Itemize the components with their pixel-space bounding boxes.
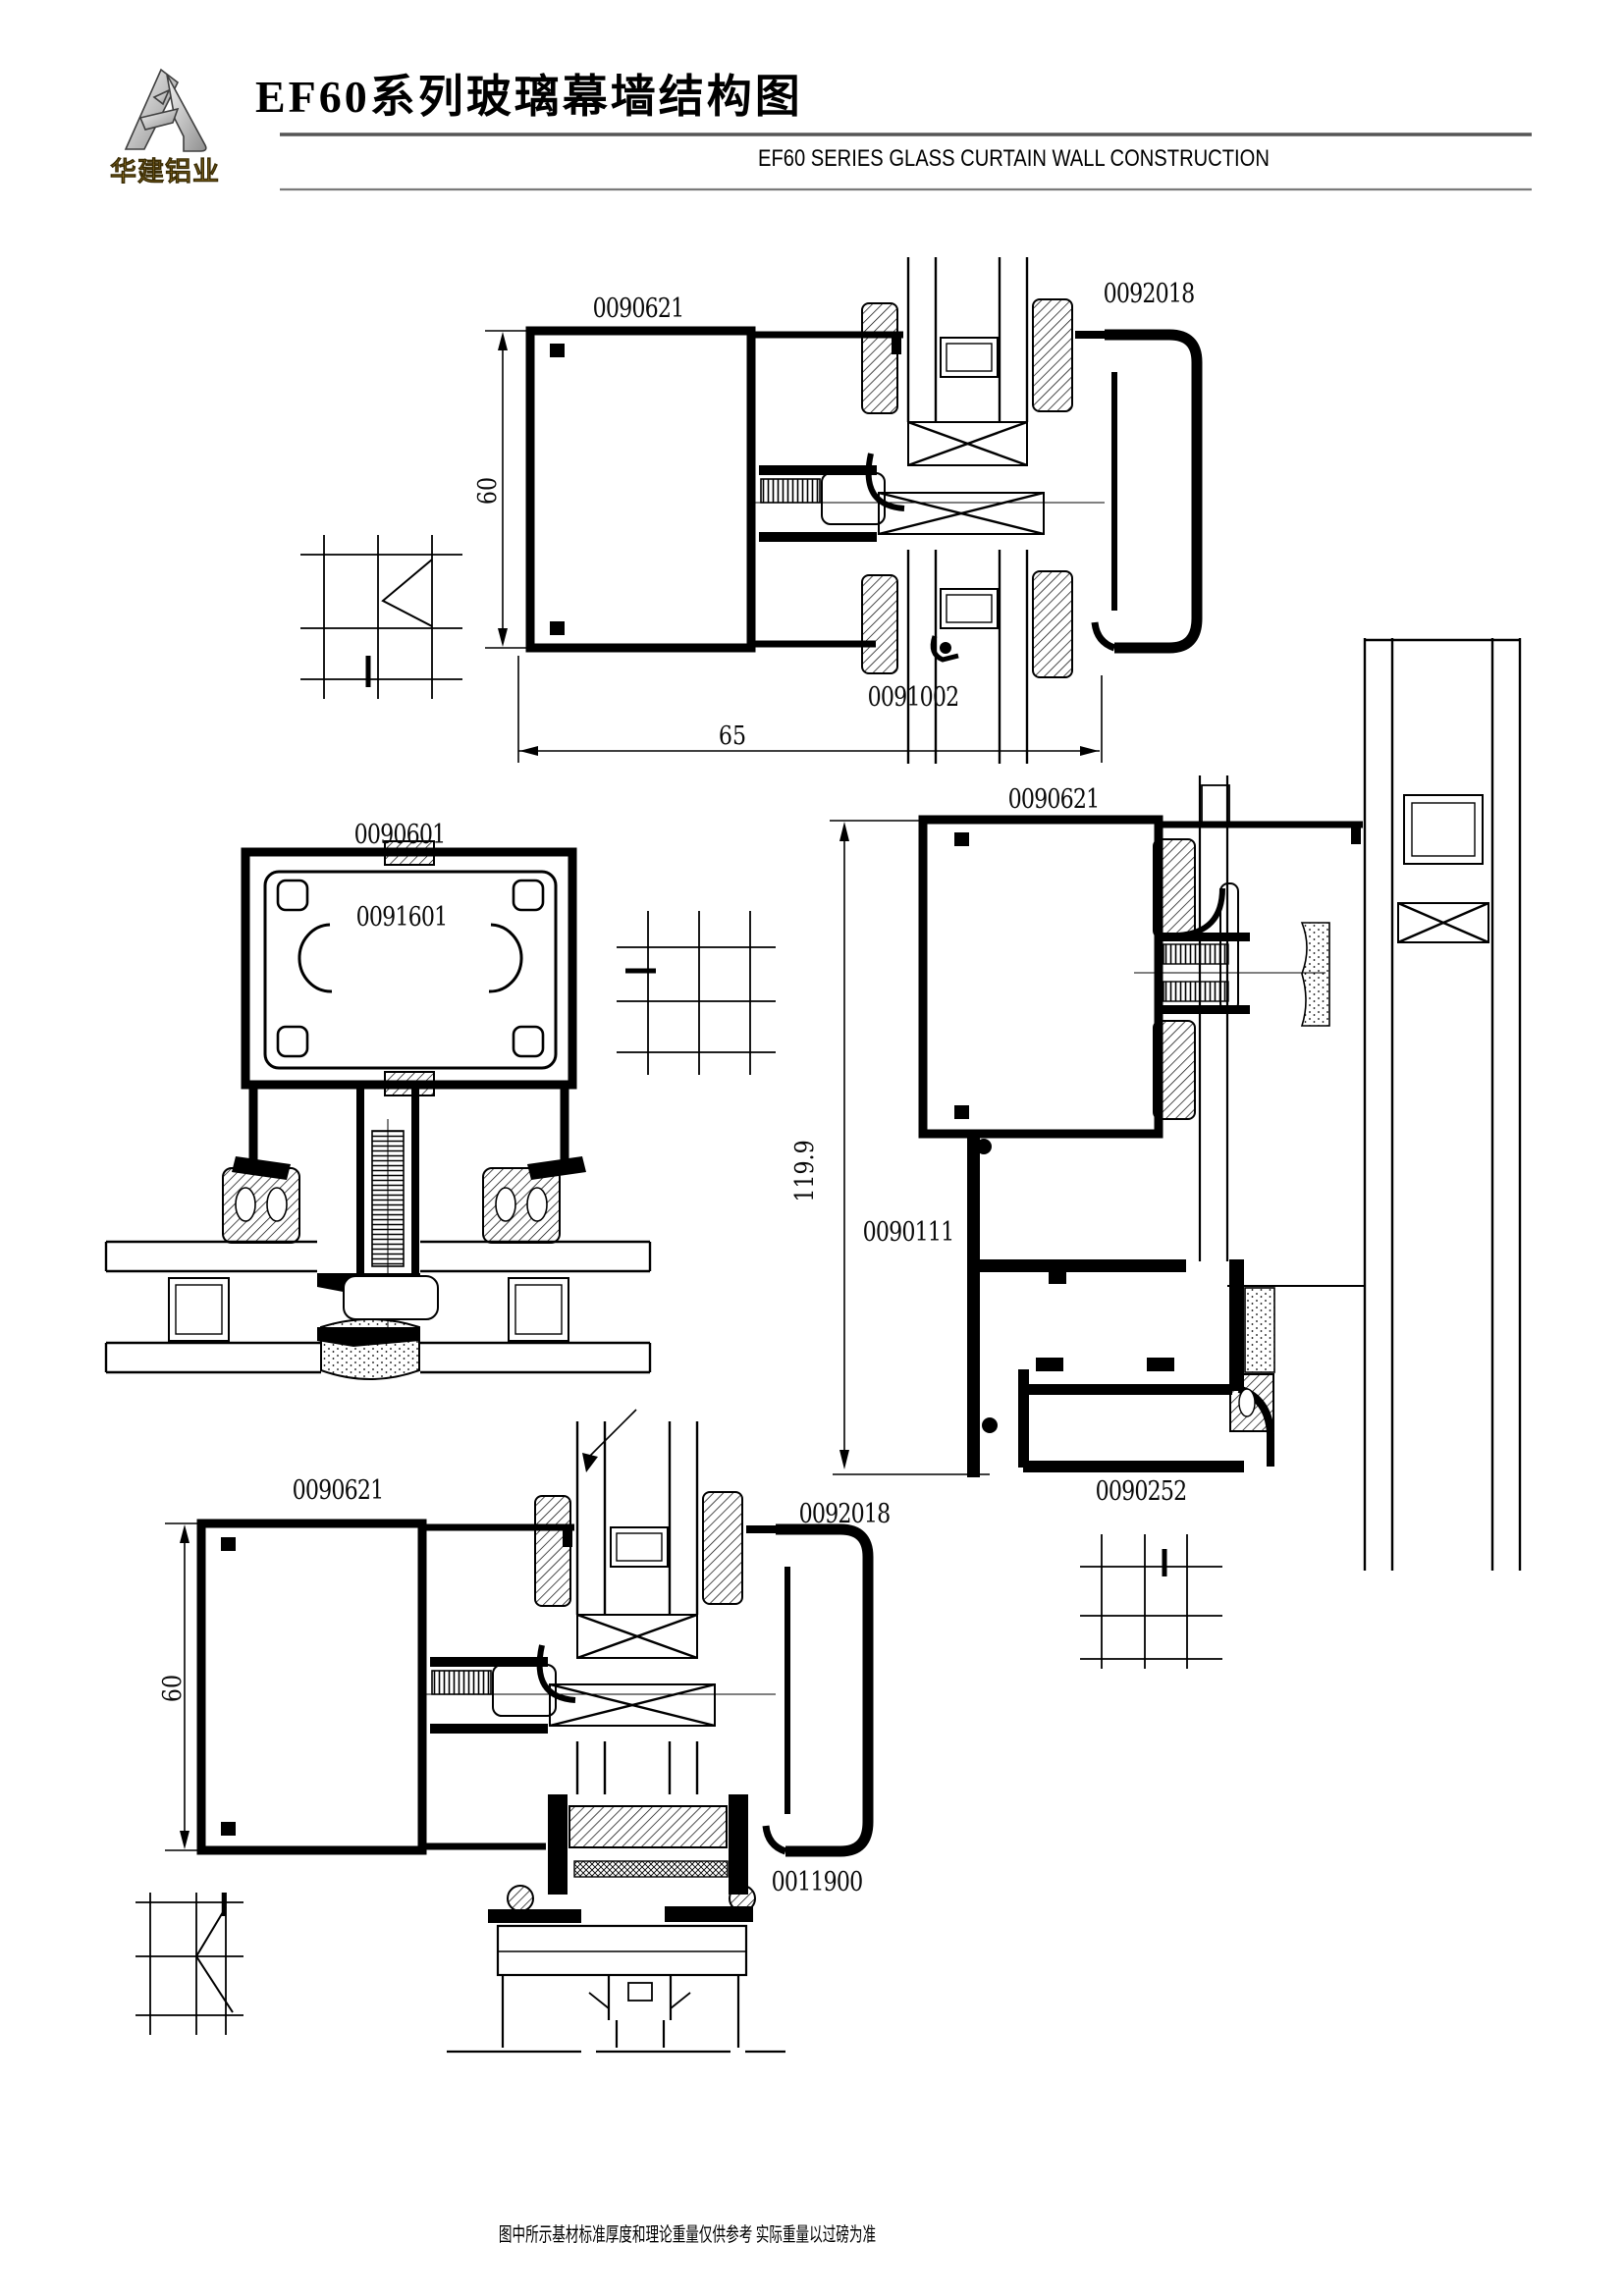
section-mark-icon bbox=[1080, 1534, 1222, 1669]
dim-height-top: 60 bbox=[473, 441, 503, 541]
logo-text: 华建铝业 bbox=[110, 150, 220, 188]
part-label-frame-corner: 0090111 bbox=[843, 1217, 972, 1248]
part-label-vent-corner: 0090252 bbox=[1076, 1476, 1205, 1507]
part-label-adapter-top: 0091002 bbox=[848, 682, 977, 713]
logo-icon bbox=[126, 70, 206, 151]
part-label-cover-top: 0092018 bbox=[1084, 279, 1213, 309]
part-label-cover-bottom: 0092018 bbox=[780, 1499, 908, 1529]
dim-height-bottom: 60 bbox=[158, 1638, 188, 1738]
part-label-subframe-bottom: 0011900 bbox=[752, 1867, 881, 1897]
part-label-mullion-plan-insert: 0091601 bbox=[337, 902, 465, 933]
drawing-sheet: EF60系列玻璃幕墙结构图 EF60 SERIES GLASS CURTAIN … bbox=[0, 0, 1623, 2296]
page-subtitle: EF60 SERIES GLASS CURTAIN WALL CONSTRUCT… bbox=[758, 145, 1270, 173]
part-label-mullion-plan-outer: 0090601 bbox=[335, 820, 463, 850]
detail-bottom-section bbox=[135, 1410, 868, 2052]
part-label-mullion-bottom: 0090621 bbox=[273, 1475, 402, 1506]
section-mark-icon bbox=[617, 911, 776, 1075]
dim-height-corner: 119.9 bbox=[790, 1121, 820, 1221]
section-mark-icon bbox=[135, 1893, 243, 2035]
dim-65-lines bbox=[518, 656, 1102, 763]
section-mark-icon bbox=[300, 535, 462, 699]
page-title: EF60系列玻璃幕墙结构图 bbox=[255, 61, 803, 126]
footer-note: 图中所示基材标准厚度和理论重量仅供参考 实际重量以过磅为准 bbox=[487, 2218, 888, 2247]
part-label-mullion-corner: 0090621 bbox=[989, 784, 1117, 815]
part-label-mullion-top: 0090621 bbox=[573, 294, 702, 324]
detail-top-section bbox=[300, 257, 1197, 764]
dim-width-top: 65 bbox=[682, 721, 783, 751]
